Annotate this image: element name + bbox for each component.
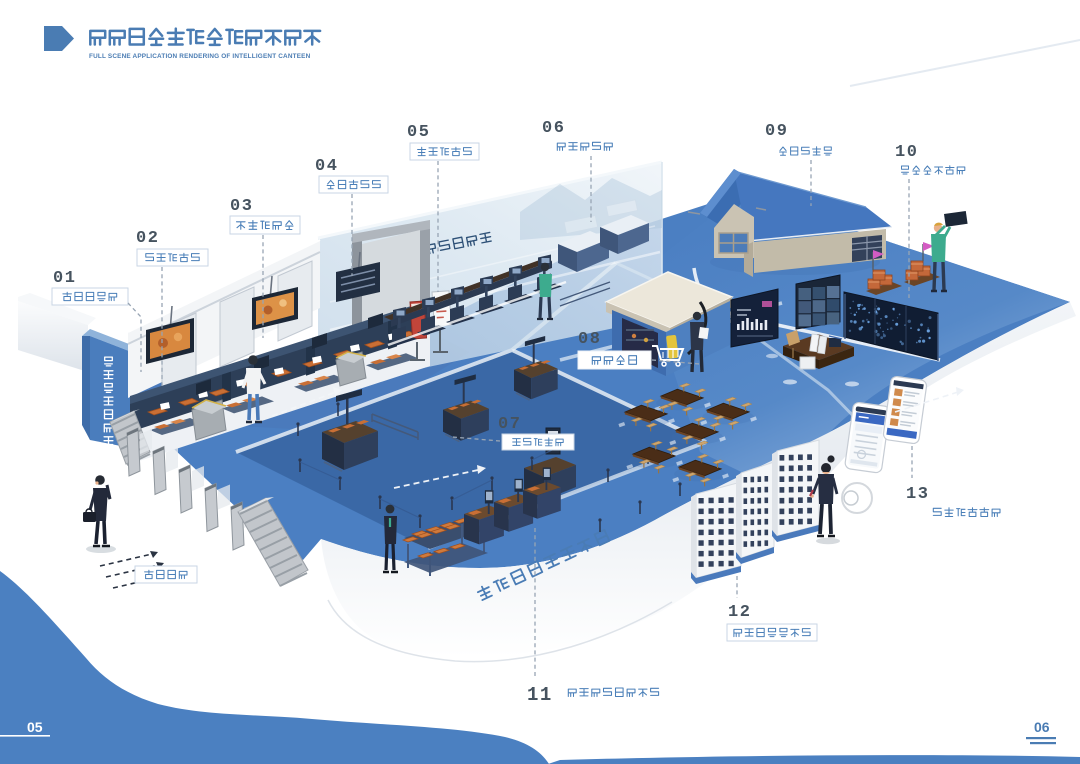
svg-text:FULL SCENE APPLICATION RENDERI: FULL SCENE APPLICATION RENDERING OF INTE… (89, 53, 311, 60)
svg-text:06: 06 (542, 119, 565, 138)
svg-text:11: 11 (527, 684, 553, 706)
svg-text:01: 01 (53, 269, 76, 288)
svg-text:12: 12 (728, 603, 751, 622)
svg-text:09: 09 (765, 122, 788, 141)
svg-text:03: 03 (230, 197, 253, 216)
svg-text:08: 08 (578, 330, 601, 349)
svg-text:02: 02 (136, 229, 159, 248)
svg-text:13: 13 (906, 485, 929, 504)
svg-text:06: 06 (1034, 719, 1050, 735)
svg-text:04: 04 (315, 157, 338, 176)
svg-text:05: 05 (407, 123, 430, 142)
svg-text:05: 05 (27, 719, 43, 735)
svg-text:10: 10 (895, 143, 918, 162)
svg-text:07: 07 (498, 415, 521, 434)
